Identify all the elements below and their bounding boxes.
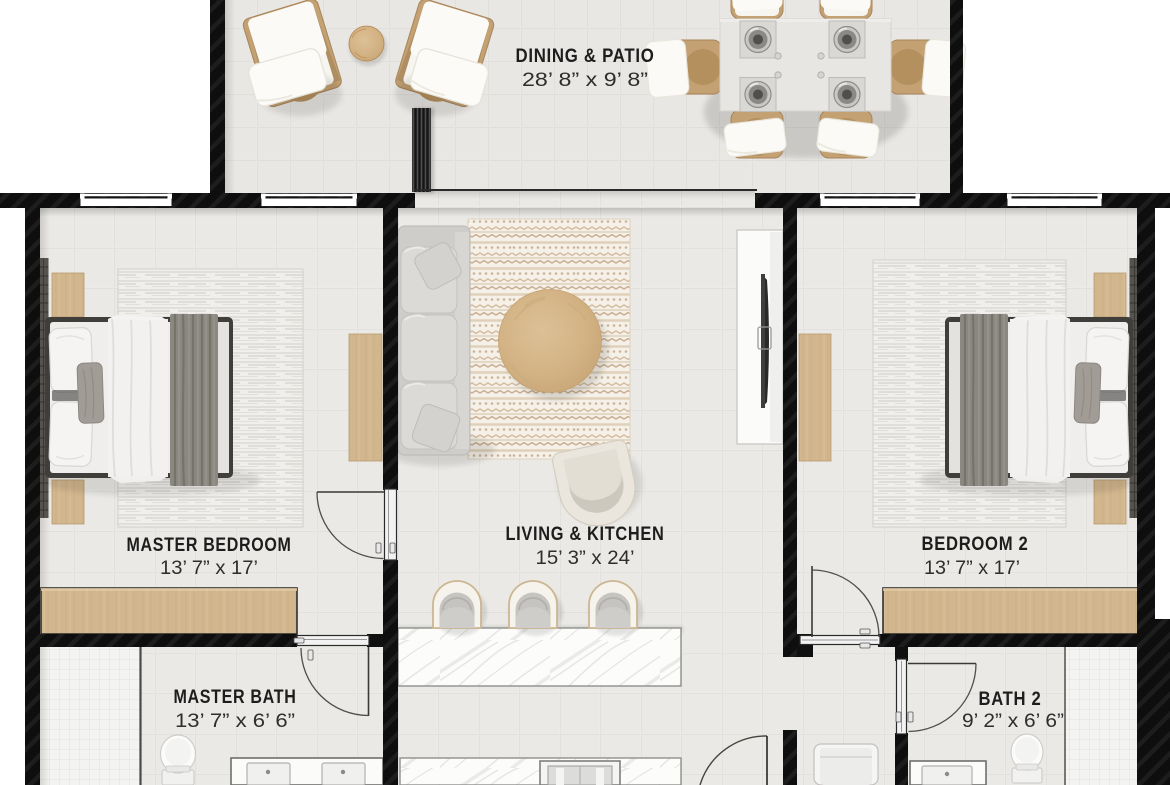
- svg-text:13’ 7” x 17’: 13’ 7” x 17’: [924, 557, 1020, 579]
- svg-text:9’ 2” x 6’ 6”: 9’ 2” x 6’ 6”: [962, 710, 1064, 732]
- svg-text:15’ 3” x 24’: 15’ 3” x 24’: [536, 547, 635, 569]
- svg-text:BATH 2: BATH 2: [979, 688, 1042, 710]
- svg-text:BEDROOM 2: BEDROOM 2: [922, 533, 1029, 555]
- svg-text:MASTER BATH: MASTER BATH: [174, 686, 297, 708]
- svg-text:LIVING & KITCHEN: LIVING & KITCHEN: [506, 523, 665, 545]
- svg-text:28’ 8” x 9’ 8”: 28’ 8” x 9’ 8”: [522, 69, 648, 91]
- svg-text:13’ 7” x 17’: 13’ 7” x 17’: [160, 557, 258, 579]
- svg-text:MASTER BEDROOM: MASTER BEDROOM: [127, 534, 292, 556]
- svg-text:13’ 7” x 6’ 6”: 13’ 7” x 6’ 6”: [175, 710, 295, 732]
- svg-text:DINING & PATIO: DINING & PATIO: [516, 45, 655, 67]
